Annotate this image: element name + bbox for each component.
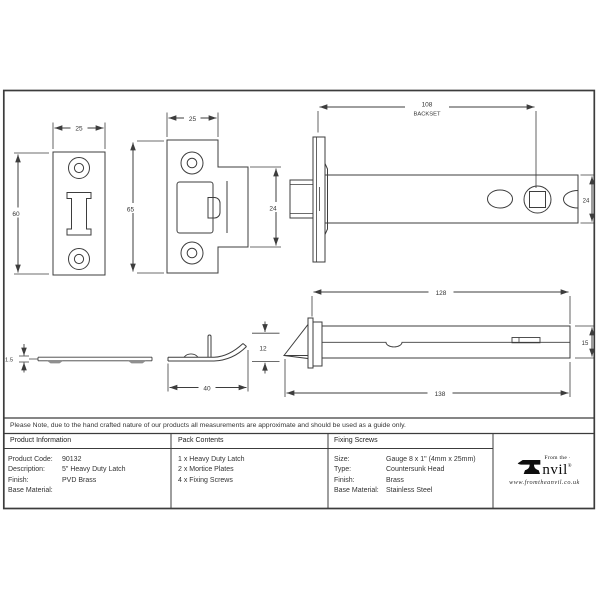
table-row: Size: Gauge 8 x 1" (4mm x 25mm) [334,455,490,465]
dim-faceplate-width: 25 [75,126,83,133]
list-item: 4 x Fixing Screws [178,476,323,486]
technical-drawing: 25 60 25 65 24 [0,0,600,600]
brand-logo: From the · nvil® www.fromtheanvil.co.uk [494,434,595,508]
list-item: 2 x Mortice Plates [178,465,323,475]
spec-sheet: 25 60 25 65 24 [0,0,600,600]
brand-name: nvil® [542,461,571,476]
table-row: Base Material: [8,486,168,496]
dim-backset-value: 108 [422,102,433,109]
header-pack-contents: Pack Contents [178,434,224,448]
table-row: Finish: PVD Brass [8,476,168,486]
dim-keep-edge-length: 40 [203,386,211,393]
dim-keep-edge-height: 12 [259,346,267,353]
view-keep-front [133,113,281,274]
brand-wordmark: From the · nvil® [517,456,571,476]
brand-website: www.fromtheanvil.co.uk [509,479,580,486]
row-value: Gauge 8 x 1" (4mm x 25mm) [386,455,476,465]
dim-case-width: 15 [582,341,589,347]
row-label: Size: [334,455,386,465]
row-value: Stainless Steel [386,486,432,496]
anvil-icon [517,458,541,476]
dim-keep-width: 25 [189,116,197,123]
table-row: Finish: Brass [334,476,490,486]
brand-name-text: nvil [542,462,567,478]
row-label: Type: [334,465,386,475]
row-label: Product Code: [8,455,62,465]
header-fixing-screws: Fixing Screws [334,434,378,448]
table-row: Base Material: Stainless Steel [334,486,490,496]
pack-contents-cell: 1 x Heavy Duty Latch 2 x Mortice Plates … [178,449,323,486]
row-value: Countersunk Head [386,465,444,475]
dim-keep-height: 65 [127,207,135,214]
row-value: Brass [386,476,404,486]
brand-text: From the · nvil® [542,456,571,476]
registered-trademark-symbol: ® [568,464,572,469]
view-latch-side [290,107,594,262]
dim-plate-thickness: 1.5 [5,358,13,364]
dim-faceplate-height: 60 [12,211,20,218]
fixing-screws-cell: Size: Gauge 8 x 1" (4mm x 25mm) Type: Co… [334,449,490,497]
row-value: PVD Brass [62,476,96,486]
list-item: 1 x Heavy Duty Latch [178,455,323,465]
dim-keep-tab-height: 24 [269,206,277,213]
dim-backset-label: BACKSET [413,112,441,118]
dim-case-length: 128 [436,290,447,297]
table-row: Type: Countersunk Head [334,465,490,475]
row-label: Description: [8,465,62,475]
dim-case-height: 24 [583,199,590,205]
view-faceplate-front [14,123,105,276]
table-row: Product Code: 90132 [8,455,168,465]
dim-overall-length: 138 [435,391,446,398]
view-keep-edge [168,322,280,392]
view-plate-edge [19,344,152,373]
row-label: Base Material: [8,486,62,496]
row-value: 90132 [62,455,81,465]
table-row: Description: 5" Heavy Duty Latch [8,465,168,475]
row-label: Base Material: [334,486,386,496]
row-label: Finish: [334,476,386,486]
product-information-cell: Product Code: 90132 Description: 5" Heav… [8,449,168,497]
measurement-note: Please Note, due to the hand crafted nat… [4,419,598,433]
row-value: 5" Heavy Duty Latch [62,465,126,475]
row-label: Finish: [8,476,62,486]
header-product-information: Product Information [10,434,71,448]
view-latch-top [284,292,594,397]
